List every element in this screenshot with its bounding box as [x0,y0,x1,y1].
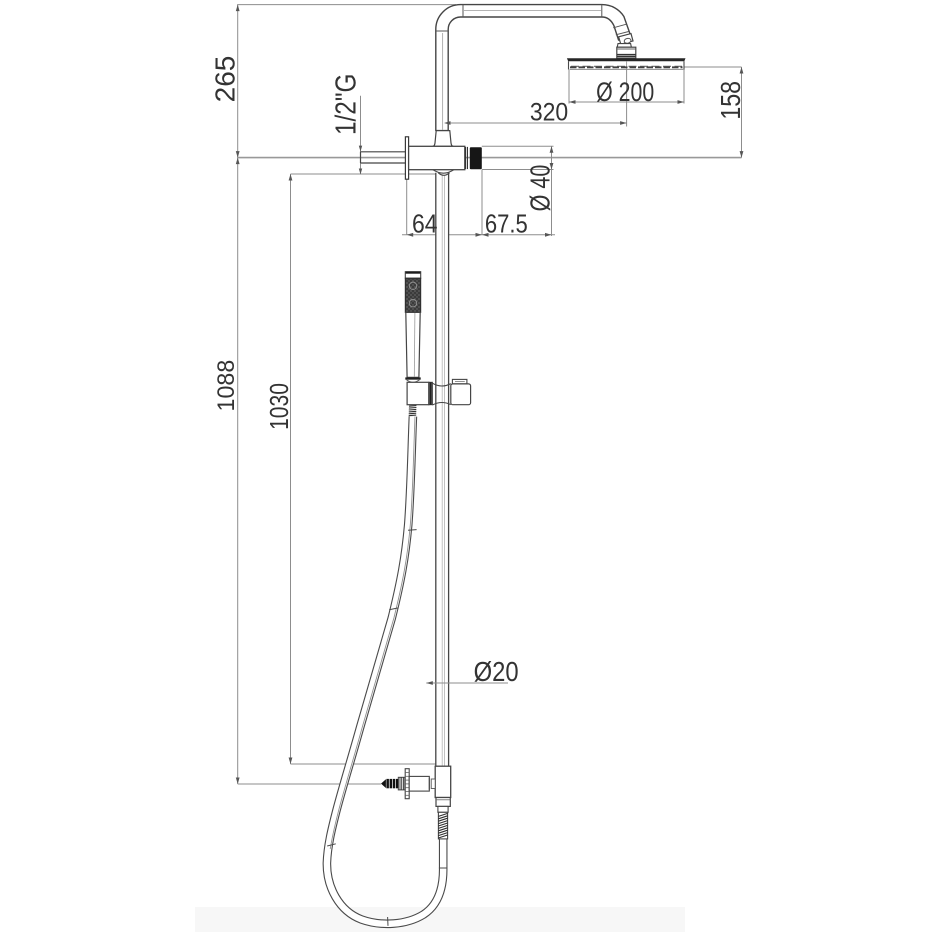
svg-text:158: 158 [716,81,746,120]
svg-text:64: 64 [412,210,438,238]
svg-text:67.5: 67.5 [485,210,528,239]
svg-text:265: 265 [210,56,241,103]
svg-text:Ø 40: Ø 40 [525,165,556,212]
svg-text:1030: 1030 [266,383,295,430]
svg-text:Ø20: Ø20 [474,655,519,687]
svg-text:Ø 200: Ø 200 [596,78,654,108]
svg-text:1088: 1088 [212,360,240,412]
svg-text:320: 320 [530,98,568,126]
svg-text:1/2"G: 1/2"G [330,74,362,135]
